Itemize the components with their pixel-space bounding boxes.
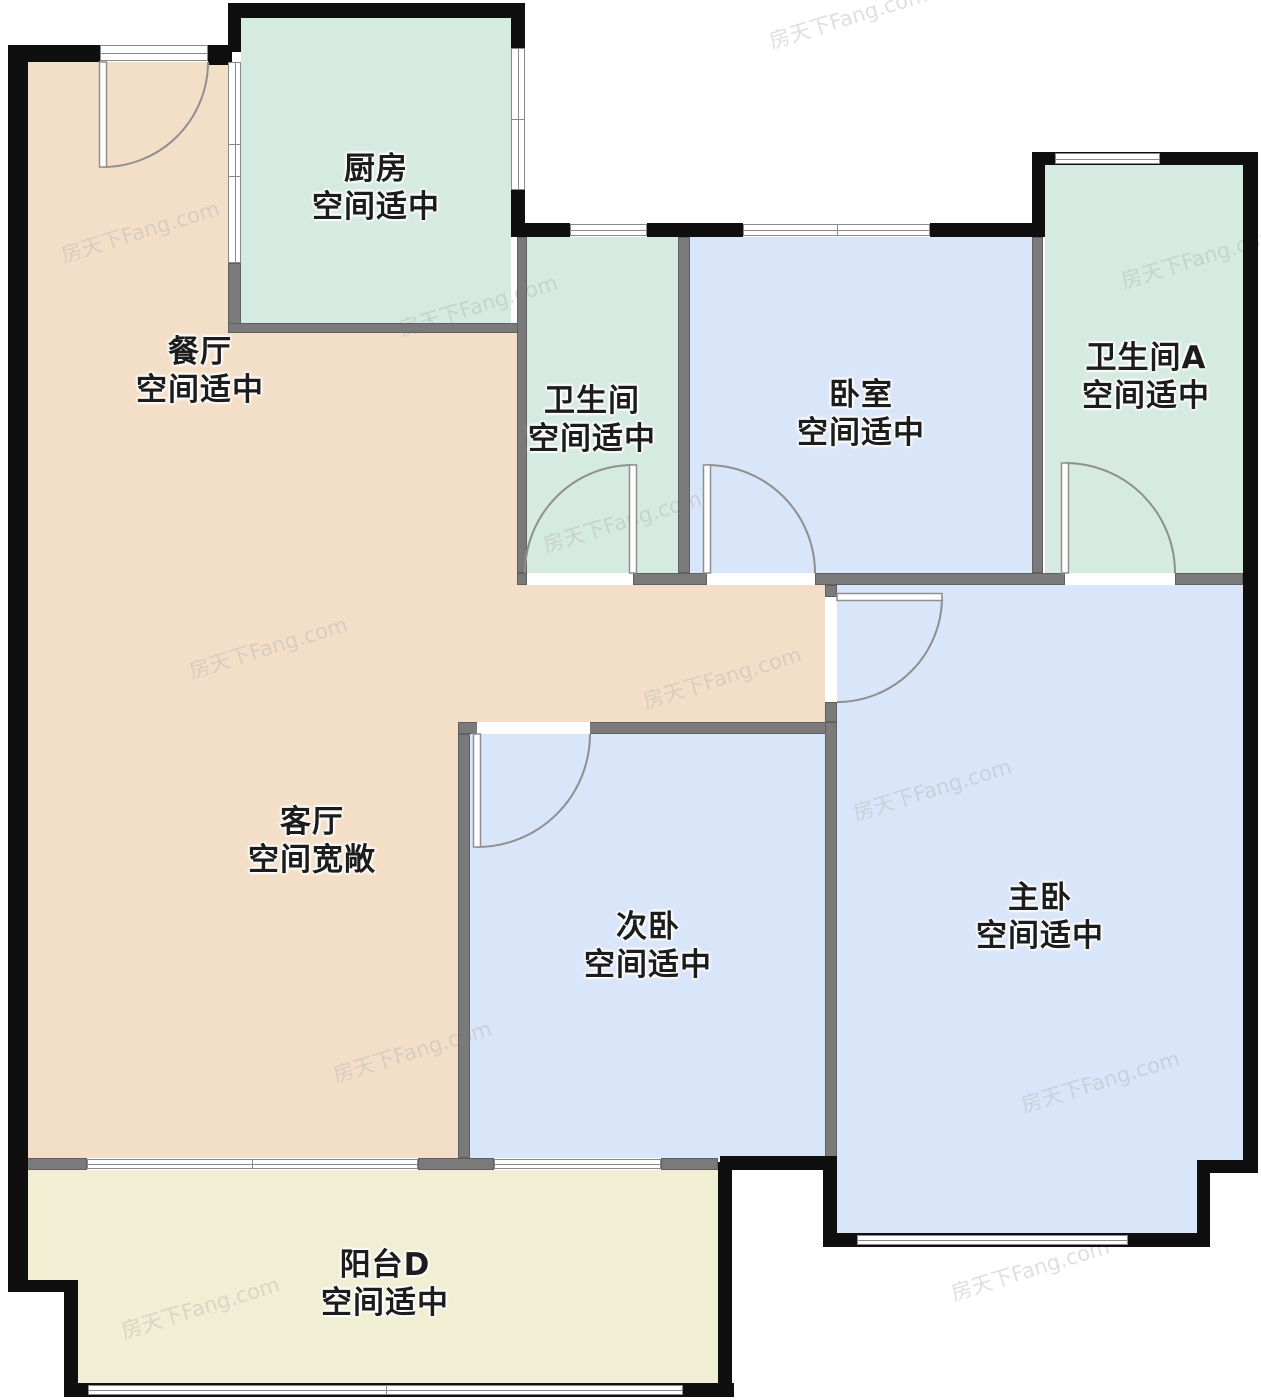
room-label-dining: 餐厅空间适中 <box>136 333 264 409</box>
room-name: 卫生间A <box>1082 339 1210 377</box>
bathroom-door-swing-arc <box>525 465 633 573</box>
second-door-leaf <box>474 734 481 847</box>
room-name: 卫生间 <box>528 382 656 420</box>
room-label-bathroom: 卫生间空间适中 <box>528 382 656 458</box>
room-name: 次卧 <box>584 908 712 946</box>
room-label-master-bedroom: 主卧空间适中 <box>976 879 1104 955</box>
room-label-living: 客厅空间宽敞 <box>248 803 376 879</box>
master-door-leaf <box>837 594 942 601</box>
entry-door-swing-arc <box>103 62 208 167</box>
room-label-second-bedroom: 次卧空间适中 <box>584 908 712 984</box>
room-label-kitchen: 厨房空间适中 <box>312 150 440 226</box>
room-name: 餐厅 <box>136 333 264 371</box>
room-size-remark: 空间适中 <box>312 188 440 226</box>
master-door-swing-arc <box>837 597 942 702</box>
bathroomA-door-leaf <box>1062 463 1069 573</box>
floor-plan: 房天下Fang.com房天下Fang.com房天下Fang.com房天下Fang… <box>0 0 1261 1400</box>
room-name: 阳台D <box>321 1246 449 1284</box>
bedroom-door-leaf <box>704 465 711 573</box>
room-size-remark: 空间适中 <box>976 917 1104 955</box>
room-name: 卧室 <box>797 376 925 414</box>
room-size-remark: 空间适中 <box>136 371 264 409</box>
room-name: 主卧 <box>976 879 1104 917</box>
bathroomA-door-swing-arc <box>1065 463 1175 573</box>
room-name: 厨房 <box>312 150 440 188</box>
room-name: 客厅 <box>248 803 376 841</box>
room-label-balcony: 阳台D空间适中 <box>321 1246 449 1322</box>
bathroom-door-leaf <box>630 465 637 573</box>
room-size-remark: 空间适中 <box>1082 377 1210 415</box>
room-size-remark: 空间宽敞 <box>248 841 376 879</box>
room-size-remark: 空间适中 <box>528 420 656 458</box>
room-size-remark: 空间适中 <box>797 414 925 452</box>
door-layer <box>0 0 1261 1400</box>
room-size-remark: 空间适中 <box>321 1284 449 1322</box>
second-door-swing-arc <box>477 734 590 847</box>
entry-door-leaf <box>100 62 107 167</box>
room-label-bathroomA: 卫生间A空间适中 <box>1082 339 1210 415</box>
bedroom-door-swing-arc <box>707 465 815 573</box>
room-label-bedroom: 卧室空间适中 <box>797 376 925 452</box>
room-size-remark: 空间适中 <box>584 946 712 984</box>
